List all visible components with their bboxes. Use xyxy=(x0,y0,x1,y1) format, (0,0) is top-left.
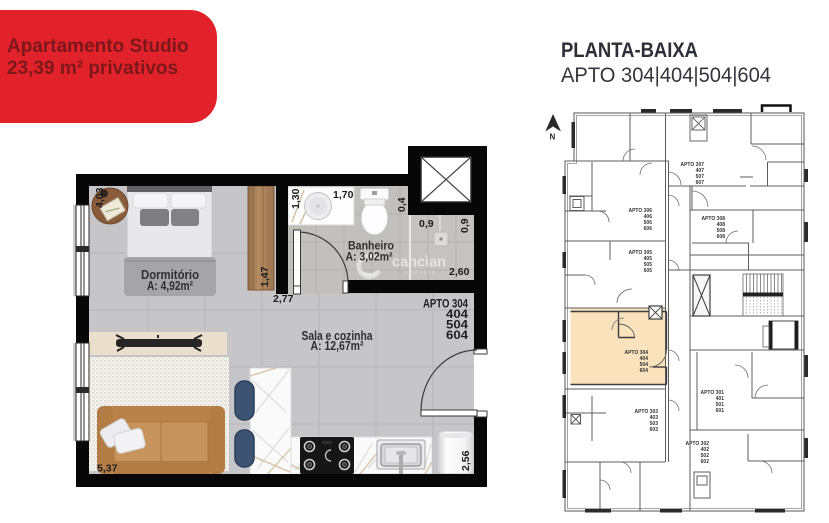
svg-text:0,4: 0,4 xyxy=(396,197,408,212)
svg-text:PLANTA-BAIXA: PLANTA-BAIXA xyxy=(561,38,698,62)
svg-text:1,30: 1,30 xyxy=(290,188,302,209)
svg-text:4,03: 4,03 xyxy=(94,187,106,208)
svg-text:2,60: 2,60 xyxy=(449,266,470,278)
svg-text:Apartamento Studio: Apartamento Studio xyxy=(7,36,189,57)
svg-text:604: 604 xyxy=(640,368,649,374)
svg-text:N: N xyxy=(550,133,556,142)
svg-text:0,9: 0,9 xyxy=(419,218,434,230)
svg-text:IMÓVEIS: IMÓVEIS xyxy=(406,269,436,275)
svg-text:603: 603 xyxy=(650,427,659,433)
svg-text:606: 606 xyxy=(644,226,653,232)
svg-text:604: 604 xyxy=(446,330,469,342)
svg-text:A: 12,67m²: A: 12,67m² xyxy=(311,339,364,353)
svg-text:5,37: 5,37 xyxy=(97,463,118,475)
svg-text:2,56: 2,56 xyxy=(460,450,472,471)
svg-text:601: 601 xyxy=(716,408,725,414)
svg-text:APTO 304|404|504|604: APTO 304|404|504|604 xyxy=(561,64,771,87)
svg-text:A: 3,02m²: A: 3,02m² xyxy=(346,250,393,264)
svg-text:1,47: 1,47 xyxy=(259,266,271,287)
svg-text:23,39 m² privativos: 23,39 m² privativos xyxy=(7,58,178,79)
svg-text:1,70: 1,70 xyxy=(333,189,354,201)
svg-text:A: 4,92m²: A: 4,92m² xyxy=(147,279,193,293)
svg-text:608: 608 xyxy=(717,234,726,240)
svg-text:605: 605 xyxy=(644,268,653,274)
svg-text:607: 607 xyxy=(696,180,705,186)
svg-text:602: 602 xyxy=(701,459,710,465)
svg-text:cancian: cancian xyxy=(392,255,446,271)
svg-text:2,77: 2,77 xyxy=(273,293,294,305)
svg-text:0,9: 0,9 xyxy=(459,218,471,233)
